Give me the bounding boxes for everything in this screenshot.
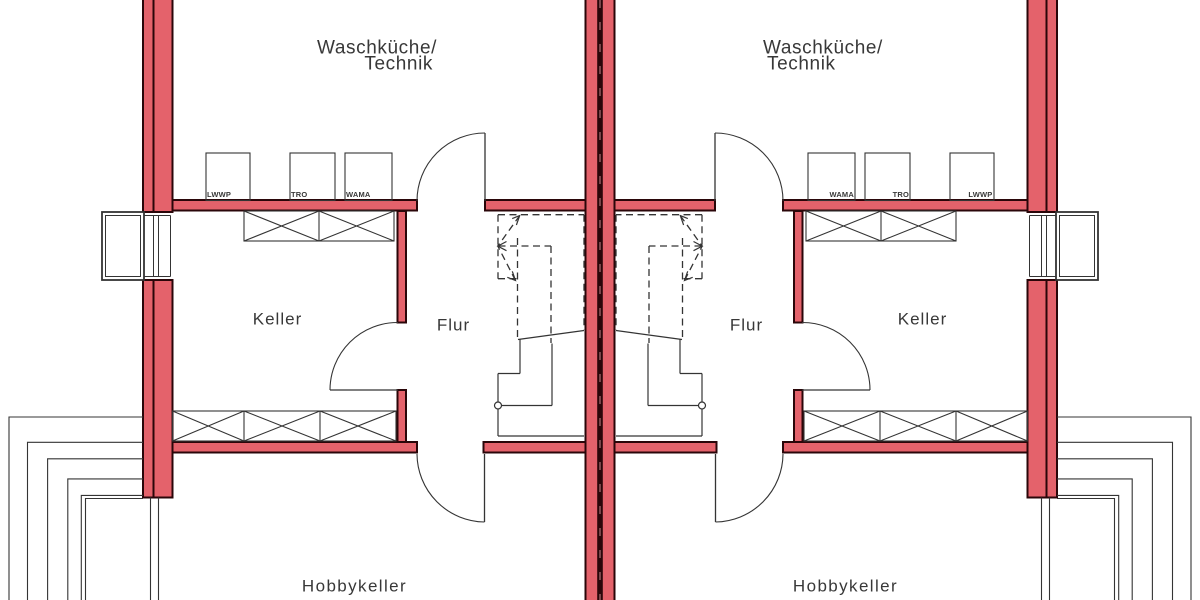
svg-text:TRO: TRO [893, 190, 909, 199]
svg-text:LWWP: LWWP [968, 190, 992, 199]
svg-text:Flur: Flur [730, 316, 763, 335]
svg-text:Flur: Flur [437, 316, 470, 335]
svg-text:Hobbykeller: Hobbykeller [302, 577, 407, 596]
svg-text:LWWP: LWWP [207, 190, 231, 199]
svg-text:WAMA: WAMA [829, 190, 854, 199]
svg-text:Keller: Keller [253, 310, 302, 329]
svg-text:Hobbykeller: Hobbykeller [793, 577, 898, 596]
svg-text:TRO: TRO [291, 190, 307, 199]
svg-text:WAMA: WAMA [346, 190, 371, 199]
svg-text:Keller: Keller [898, 310, 947, 329]
